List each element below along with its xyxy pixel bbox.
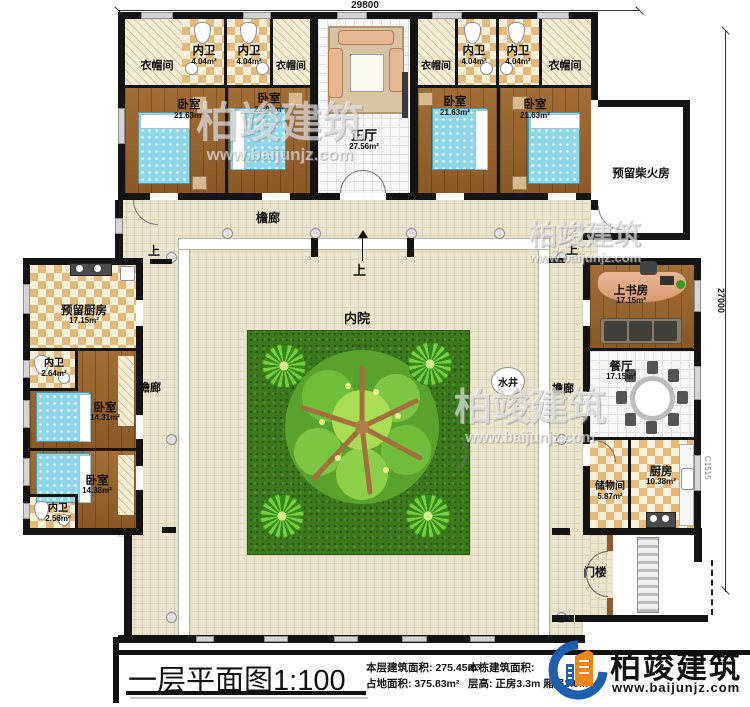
wall-stub bbox=[552, 615, 574, 622]
pillow bbox=[475, 110, 488, 170]
area: 17.15m² bbox=[69, 317, 99, 326]
area: 5.87m² bbox=[597, 493, 622, 502]
step-arrow-line bbox=[362, 237, 363, 261]
dimension-width: 29800 bbox=[330, 0, 400, 11]
door-opening bbox=[136, 300, 143, 326]
chair bbox=[677, 391, 688, 404]
room-label-bed1438: 卧室14.38m² bbox=[70, 472, 124, 499]
stat-value: 375.83m² bbox=[414, 678, 459, 690]
wall bbox=[497, 88, 500, 193]
step-bar bbox=[549, 258, 565, 263]
laptop bbox=[660, 276, 674, 285]
desk-chair bbox=[640, 261, 657, 275]
step-arrow-head bbox=[358, 230, 368, 238]
room-label-bed1: 卧室21.63m² bbox=[160, 98, 218, 122]
wall bbox=[694, 528, 702, 562]
room-label-gate: 门楼 bbox=[580, 565, 610, 581]
chair bbox=[668, 413, 679, 426]
step-up-right: 上 bbox=[566, 241, 578, 258]
plant bbox=[262, 344, 306, 388]
wall bbox=[75, 351, 78, 389]
step-bar bbox=[150, 259, 172, 264]
cloak-name: 衣帽间 bbox=[421, 62, 451, 73]
window bbox=[694, 280, 701, 312]
room-label-kitchen-reserved: 预留厨房17.15m² bbox=[43, 302, 125, 329]
window bbox=[115, 218, 123, 234]
gate-opening-dashed bbox=[711, 560, 713, 615]
window-code-label: C1515 bbox=[703, 456, 712, 480]
wall bbox=[310, 19, 318, 193]
sofa bbox=[328, 48, 343, 98]
column-base bbox=[166, 612, 177, 623]
area: 14.38m² bbox=[82, 487, 112, 496]
wall bbox=[124, 535, 132, 638]
room-label-dining: 餐厅17.15m² bbox=[592, 358, 650, 385]
cloakroom-floor bbox=[273, 19, 310, 87]
name: 内卫 bbox=[48, 504, 68, 515]
logo-url: www.baijunjz.com bbox=[612, 680, 740, 695]
dimension-height: 27000 bbox=[714, 288, 726, 313]
window bbox=[118, 108, 125, 144]
name: 内卫 bbox=[44, 359, 64, 370]
window bbox=[470, 636, 495, 642]
nightstand bbox=[512, 176, 527, 190]
wall-stub bbox=[162, 527, 176, 533]
stat-label: 层高: bbox=[468, 678, 493, 690]
room-label-storage: 储物间5.87m² bbox=[588, 479, 632, 504]
firewood-name: 预留柴火房 bbox=[612, 168, 670, 180]
veranda-label-left: 檐廊 bbox=[139, 379, 161, 395]
title-underline-shadow bbox=[130, 697, 368, 699]
name: 储物间 bbox=[595, 482, 625, 493]
area: 17.15m² bbox=[606, 373, 636, 382]
wall bbox=[683, 100, 690, 240]
room-label-bath264: 内卫2.64m² bbox=[33, 356, 75, 381]
bed-area: 21.63m² bbox=[520, 112, 550, 121]
wall bbox=[590, 437, 694, 440]
window bbox=[694, 366, 701, 400]
veranda-edge bbox=[538, 249, 550, 637]
door-opening bbox=[583, 392, 590, 416]
courtyard-label: 内院 bbox=[344, 308, 370, 327]
wall bbox=[30, 348, 136, 351]
chair bbox=[668, 369, 679, 382]
burner bbox=[94, 265, 101, 272]
plant bbox=[406, 494, 450, 538]
bed-area: 21.63m² bbox=[440, 109, 470, 118]
column bbox=[407, 238, 414, 257]
area: 2.64m² bbox=[41, 370, 66, 379]
room-label-firewood: 预留柴火房 bbox=[602, 167, 680, 182]
bed-area: 21.63m² bbox=[254, 106, 284, 115]
coffee-table bbox=[350, 54, 384, 92]
window bbox=[402, 636, 427, 642]
step-up-left: 上 bbox=[148, 242, 160, 259]
room-label-bath3: 内卫4.04m² bbox=[452, 43, 496, 69]
room-label-study: 上书房17.15m² bbox=[600, 282, 662, 309]
nightstand bbox=[192, 176, 207, 190]
window bbox=[694, 455, 701, 491]
room-label-bed3: 卧室21.63m² bbox=[426, 95, 484, 119]
stats-left: 本层建筑面积: 275.45m² 占地面积: 375.83m² bbox=[366, 661, 480, 693]
door-opening bbox=[262, 193, 290, 200]
cloakroom-floor bbox=[542, 19, 591, 87]
chair bbox=[625, 413, 636, 426]
column-base bbox=[166, 434, 177, 445]
column-base bbox=[556, 434, 567, 445]
window bbox=[243, 12, 271, 19]
sofa-cushion bbox=[654, 321, 677, 341]
room-label-cloak2: 衣帽间 bbox=[271, 60, 311, 74]
kitchen-sink bbox=[120, 266, 135, 281]
plant bbox=[260, 494, 304, 538]
entrance-ramp bbox=[637, 537, 659, 613]
pillow bbox=[232, 110, 245, 170]
bath-area: 4.04m² bbox=[191, 58, 216, 67]
door-opening bbox=[583, 444, 590, 466]
door-opening bbox=[150, 193, 178, 200]
bath-area: 4.04m² bbox=[461, 58, 486, 67]
wall bbox=[418, 85, 591, 88]
hall-area: 27.56m² bbox=[349, 143, 379, 152]
stat-label: 本栋建筑面积: bbox=[468, 662, 535, 674]
stat-label: 本层建筑面积: bbox=[366, 662, 433, 674]
tv-cabinet bbox=[402, 72, 408, 118]
window bbox=[23, 284, 30, 314]
burner bbox=[650, 515, 657, 522]
wall bbox=[575, 615, 708, 622]
step-up-center: 上 bbox=[353, 260, 366, 279]
window bbox=[23, 458, 30, 486]
veranda-label-top: 檐廊 bbox=[256, 209, 280, 226]
area: 14.31m² bbox=[90, 414, 120, 423]
window bbox=[337, 12, 367, 19]
wall-stub bbox=[552, 528, 570, 535]
room-label-bath256: 内卫2.56m² bbox=[36, 501, 80, 526]
veranda-edge bbox=[178, 249, 190, 637]
gate-door-post bbox=[607, 535, 613, 551]
area: 2.56m² bbox=[45, 515, 70, 524]
cloak-name: 衣帽间 bbox=[141, 61, 174, 73]
door-opening bbox=[436, 193, 464, 200]
column bbox=[311, 238, 318, 257]
wall bbox=[30, 388, 78, 391]
room-label-bath1: 内卫4.04m² bbox=[184, 43, 224, 69]
wall bbox=[598, 100, 690, 107]
door-opening bbox=[340, 193, 386, 200]
wall bbox=[125, 85, 310, 88]
cloak-name: 衣帽间 bbox=[276, 62, 306, 73]
sofa-cushion bbox=[604, 321, 627, 341]
room-label-bed1431: 卧室14.31m² bbox=[78, 399, 132, 426]
gate-door-post bbox=[607, 598, 613, 615]
window bbox=[141, 12, 173, 19]
wall bbox=[225, 88, 228, 193]
stat-row: 本层建筑面积: 275.45m² bbox=[366, 661, 480, 677]
door-opening bbox=[548, 193, 576, 200]
stat-label: 占地面积: bbox=[366, 678, 412, 690]
room-label-cloak4: 衣帽间 bbox=[540, 60, 590, 74]
area: 10.38m² bbox=[646, 478, 676, 487]
bath-area: 4.04m² bbox=[505, 58, 530, 67]
window bbox=[264, 636, 288, 642]
room-label-hall: 正厅27.56m² bbox=[318, 126, 410, 154]
room-label-bath2: 内卫4.04m² bbox=[228, 43, 270, 69]
area: 17.15m² bbox=[616, 297, 646, 306]
window bbox=[334, 636, 358, 642]
window bbox=[23, 503, 30, 519]
door-opening bbox=[136, 415, 143, 439]
sofa bbox=[338, 30, 394, 45]
cloak-name: 衣帽间 bbox=[549, 61, 582, 73]
well-label: 水井 bbox=[494, 374, 522, 389]
window bbox=[23, 400, 30, 428]
window bbox=[196, 636, 214, 642]
wall bbox=[224, 19, 227, 87]
wall bbox=[591, 200, 598, 210]
wall bbox=[30, 448, 136, 451]
chair bbox=[646, 421, 657, 434]
veranda-label-right: 檐廊 bbox=[552, 380, 574, 396]
floor-plan: 29800 27000 bbox=[0, 0, 750, 707]
column-base bbox=[494, 228, 505, 239]
bed-area: 21.63m² bbox=[174, 112, 204, 121]
wall bbox=[270, 19, 273, 87]
plant bbox=[408, 342, 452, 386]
gate-name: 门楼 bbox=[584, 567, 607, 579]
room-label-bath4: 内卫4.04m² bbox=[496, 43, 540, 69]
sofa-cushion bbox=[629, 321, 652, 341]
room-label-cloak1: 衣帽间 bbox=[132, 60, 182, 74]
wall bbox=[583, 233, 690, 240]
burner bbox=[662, 515, 669, 522]
wall bbox=[410, 19, 418, 193]
title-underline bbox=[126, 691, 366, 695]
cloakroom-floor bbox=[418, 19, 455, 87]
desk-plant bbox=[676, 280, 685, 289]
bath-area: 4.04m² bbox=[236, 58, 261, 67]
burner bbox=[76, 265, 83, 272]
veranda-edge bbox=[178, 238, 550, 250]
room-label-bed2: 卧室21.63m² bbox=[240, 92, 298, 116]
window bbox=[432, 12, 462, 19]
window bbox=[537, 12, 569, 19]
stat-row: 占地面积: 375.83m² bbox=[366, 677, 480, 693]
room-label-kitchen: 厨房10.38m² bbox=[636, 463, 686, 490]
window bbox=[23, 360, 30, 378]
cloakroom-floor bbox=[125, 19, 182, 87]
chair bbox=[616, 391, 627, 404]
logo-icon bbox=[548, 640, 608, 700]
wall bbox=[590, 348, 694, 351]
door-opening bbox=[583, 300, 590, 326]
door-opening bbox=[136, 466, 143, 490]
title-block-line-v bbox=[113, 637, 119, 703]
column-base bbox=[222, 228, 233, 239]
hall-name: 正厅 bbox=[351, 129, 377, 143]
room-label-bed4: 卧室21.63m² bbox=[506, 98, 564, 122]
